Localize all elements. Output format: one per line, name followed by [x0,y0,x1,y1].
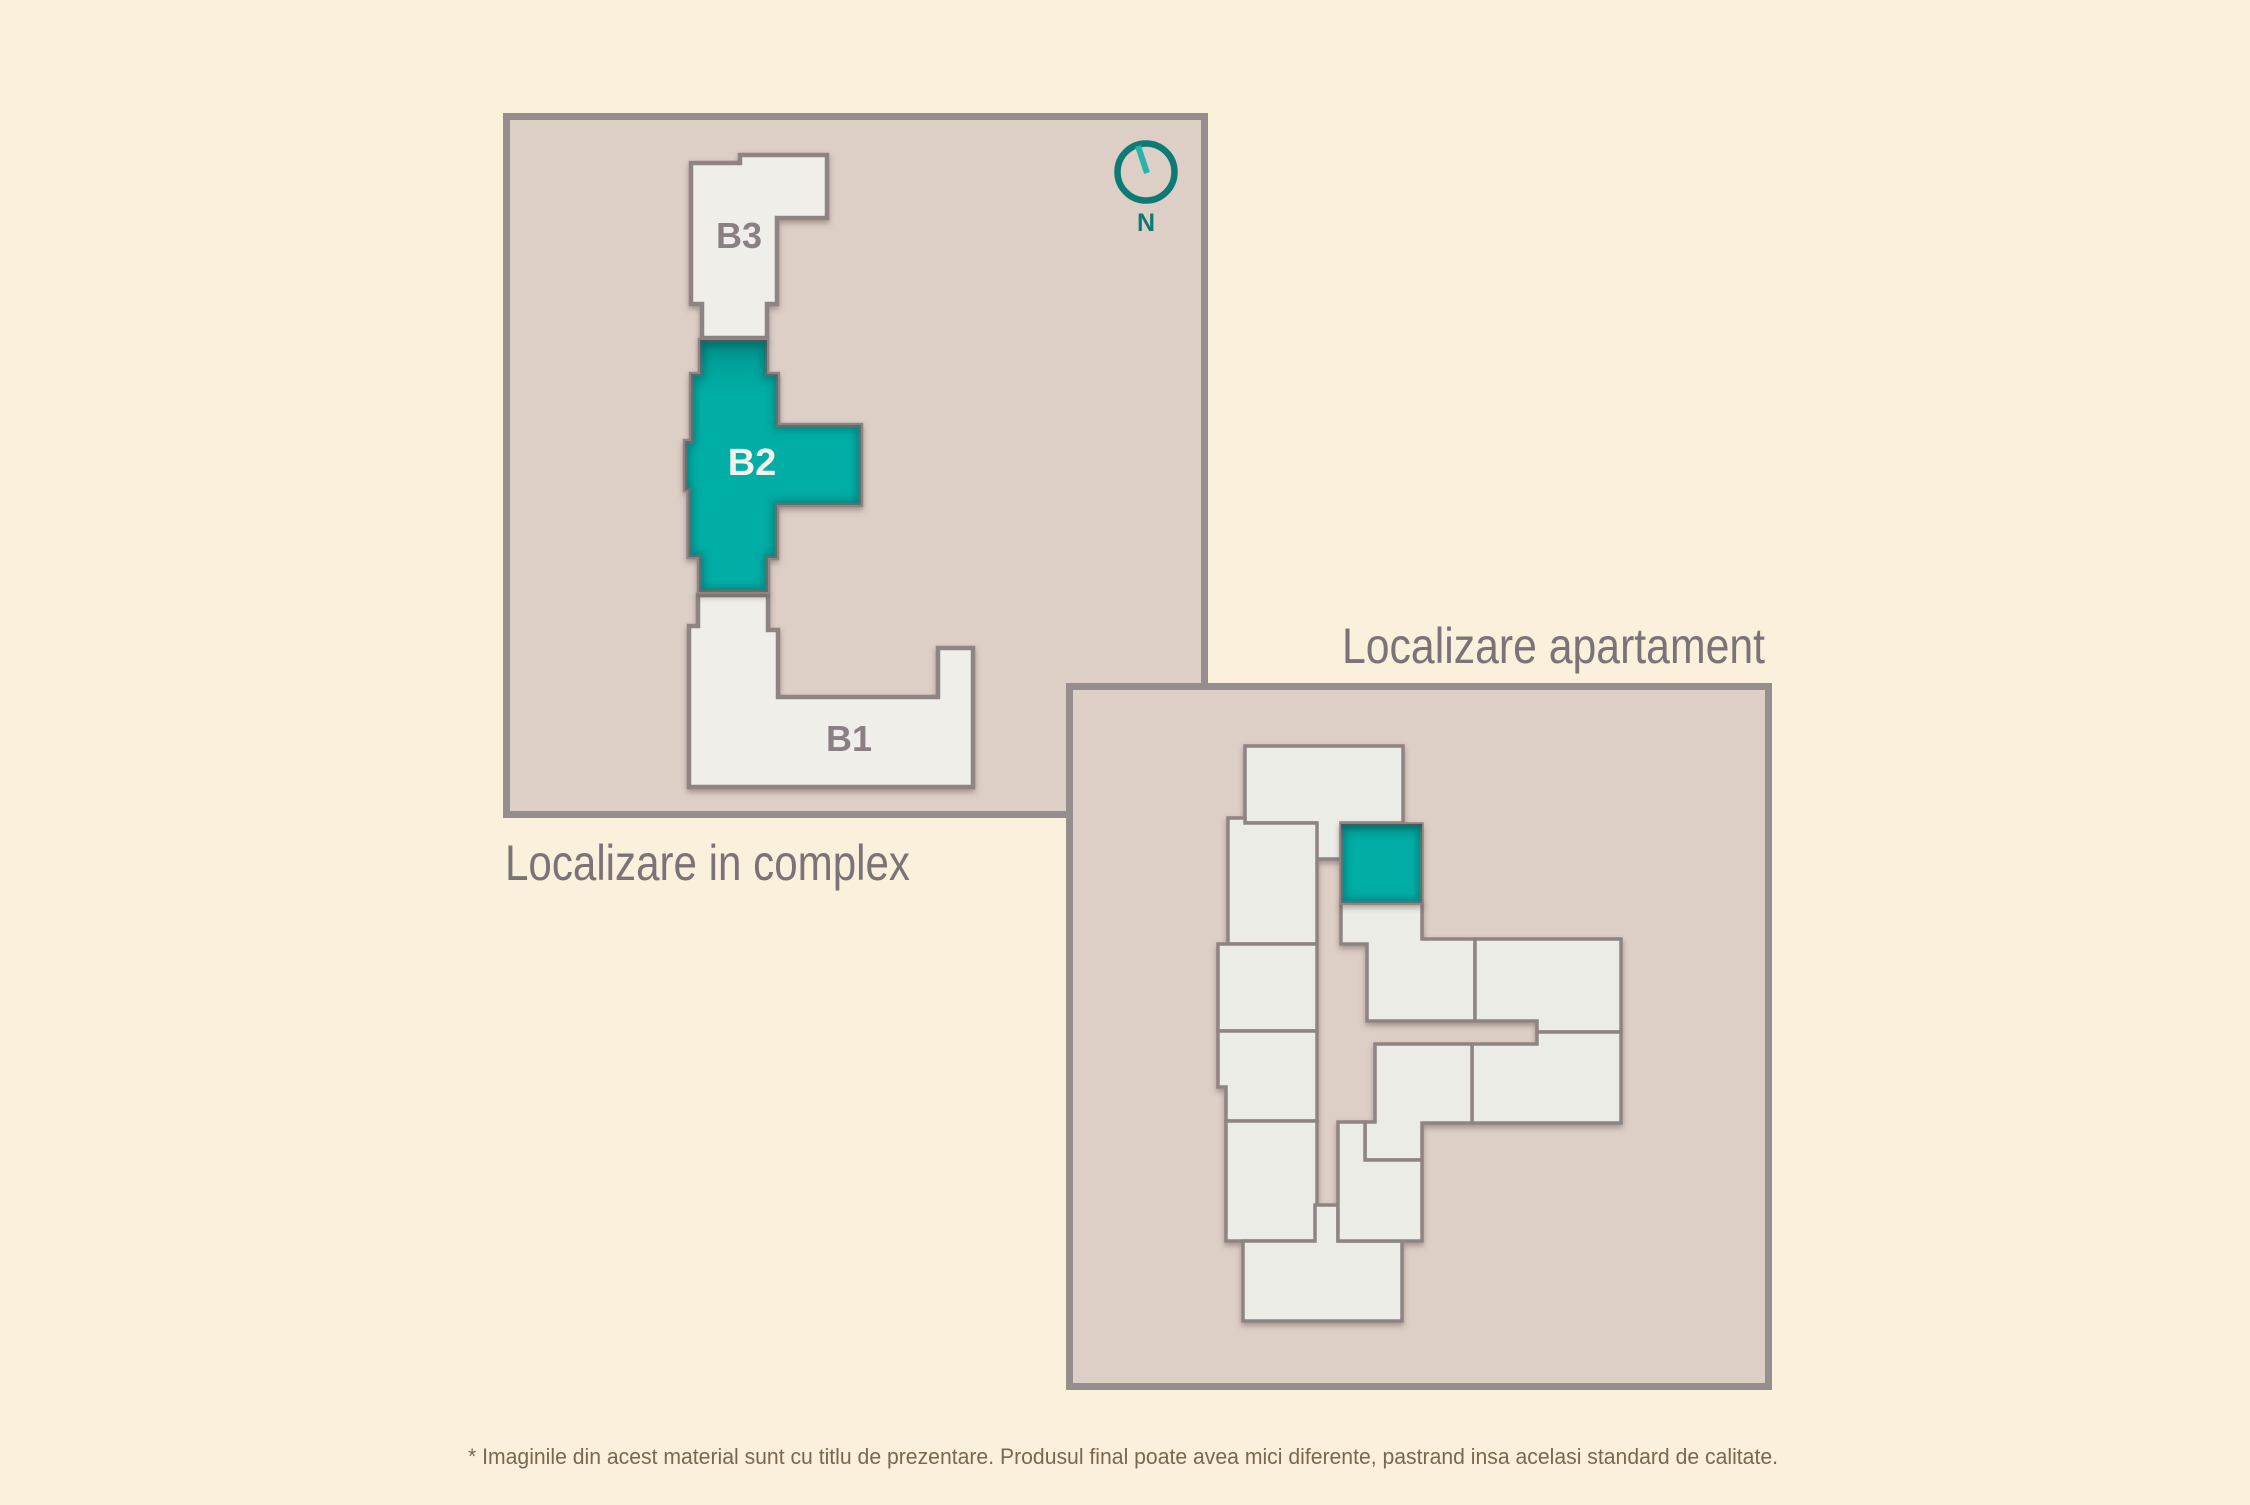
svg-text:B3: B3 [716,215,762,256]
svg-text:B1: B1 [826,718,872,759]
svg-text:N: N [1137,209,1155,237]
svg-text:B2: B2 [728,442,777,484]
svg-text:Localizare in complex: Localizare in complex [505,835,910,891]
svg-text:Localizare apartament: Localizare apartament [1342,618,1765,674]
svg-text:* Imaginile din acest material: * Imaginile din acest material sunt cu t… [468,1444,1778,1469]
